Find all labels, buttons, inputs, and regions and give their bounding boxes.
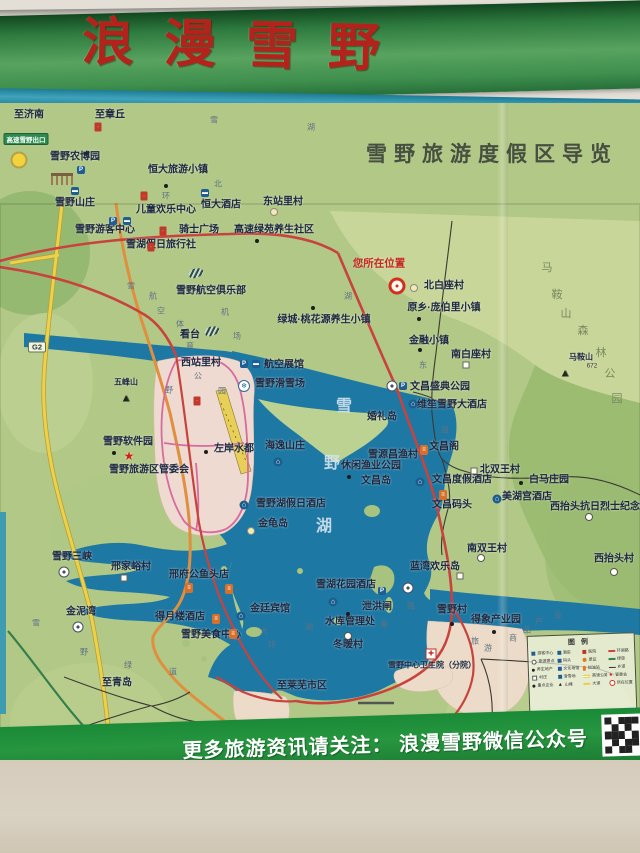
legend-item-label: 高速公路 — [592, 672, 607, 679]
legend: 图例 游客中心酒店医院环湖路旅游景点码头景区绿道养生地产文化场馆加油站乡道村庄滑… — [527, 632, 638, 714]
legend-item: 所在位置 — [609, 679, 633, 686]
legend-item: 文化场馆 — [557, 665, 581, 672]
legend-symbol-dot — [532, 668, 535, 671]
legend-item-label: 景区 — [588, 656, 596, 662]
legend-item: 景区 — [582, 656, 606, 663]
legend-symbol-star: ★ — [608, 672, 613, 678]
legend-symbol-target — [609, 680, 615, 686]
legend-item: ▲山峰 — [558, 681, 582, 688]
legend-item-label: 养生地产 — [537, 666, 553, 673]
legend-item-label: 山峰 — [565, 681, 573, 687]
legend-item: 养生地产 — [532, 666, 556, 673]
legend-symbol-yline2 — [583, 674, 590, 677]
legend-symbol-bsq2 — [558, 675, 562, 679]
sign-frame-left-edge — [0, 512, 6, 714]
wall-below-sign — [0, 760, 640, 853]
legend-item: 酒店 — [557, 649, 581, 656]
legend-symbol-bsq2 — [557, 659, 561, 663]
legend-item: 高速公路 — [583, 672, 607, 679]
legend-symbol-wsq — [532, 675, 537, 680]
legend-item-label: 重点企业 — [537, 682, 553, 689]
legend-item-label: 加油站 — [588, 664, 600, 670]
legend-item-label: 所在位置 — [617, 679, 633, 686]
legend-item-label: 管委会 — [615, 671, 627, 677]
legend-item-label: 大道 — [592, 680, 600, 686]
legend-item-label: 村庄 — [539, 674, 547, 680]
legend-title: 图例 — [531, 635, 631, 648]
legend-item: 绿道 — [608, 655, 632, 662]
legend-item: 重点企业 — [532, 682, 556, 689]
legend-symbol-yline — [583, 683, 590, 685]
legend-item-label: 码头 — [563, 657, 571, 663]
legend-symbol-gline — [608, 658, 615, 660]
legend-symbol-rline — [608, 650, 615, 653]
legend-symbol-bsq2 — [557, 667, 561, 671]
legend-symbol-ocirc — [582, 658, 586, 662]
legend-symbol-bline — [608, 666, 615, 667]
legend-item: 滑雪场 — [558, 673, 582, 680]
sign-title: 浪漫雪野 — [81, 13, 410, 80]
legend-item: 加油站 — [583, 664, 607, 671]
signboard-photo: 浪漫雪野 — [0, 0, 640, 853]
legend-item: 游客中心 — [531, 650, 555, 657]
photo-fold-crease — [497, 103, 508, 715]
legend-symbol-rsq — [582, 650, 586, 654]
legend-symbol-tri: ▲ — [558, 682, 563, 688]
legend-item: 旅游景点 — [531, 658, 555, 665]
legend-item: 大道 — [583, 680, 607, 687]
legend-symbol-obadge — [583, 665, 586, 670]
legend-item-label: 滑雪场 — [564, 673, 576, 679]
legend-item: 医院 — [582, 648, 606, 655]
legend-item: 环湖路 — [608, 647, 632, 654]
legend-item-label: 文化场馆 — [563, 665, 579, 672]
footer-banner-text: 更多旅游资讯请关注： 浪漫雪野微信公众号 — [182, 722, 588, 763]
legend-symbol-dot — [532, 684, 535, 687]
legend-items: 游客中心酒店医院环湖路旅游景点码头景区绿道养生地产文化场馆加油站乡道村庄滑雪场高… — [531, 647, 632, 688]
legend-item-label: 环湖路 — [617, 647, 629, 653]
legend-symbol-bsq2 — [557, 651, 561, 655]
resort-map — [0, 103, 640, 715]
legend-item-label: 乡道 — [617, 663, 625, 669]
legend-item-label: 医院 — [588, 648, 596, 654]
legend-item-label: 旅游景点 — [538, 658, 554, 665]
legend-symbol-bsq — [531, 652, 535, 656]
legend-item-label: 游客中心 — [537, 650, 553, 657]
legend-item: 码头 — [557, 657, 581, 664]
legend-item: 村庄 — [532, 674, 556, 681]
legend-item: ★管委会 — [608, 671, 632, 678]
qr-code-icon — [601, 713, 640, 756]
legend-item-label: 绿道 — [617, 655, 625, 661]
legend-item-label: 酒店 — [563, 649, 571, 655]
legend-symbol-wcirc — [531, 659, 536, 664]
legend-item: 乡道 — [608, 663, 632, 670]
